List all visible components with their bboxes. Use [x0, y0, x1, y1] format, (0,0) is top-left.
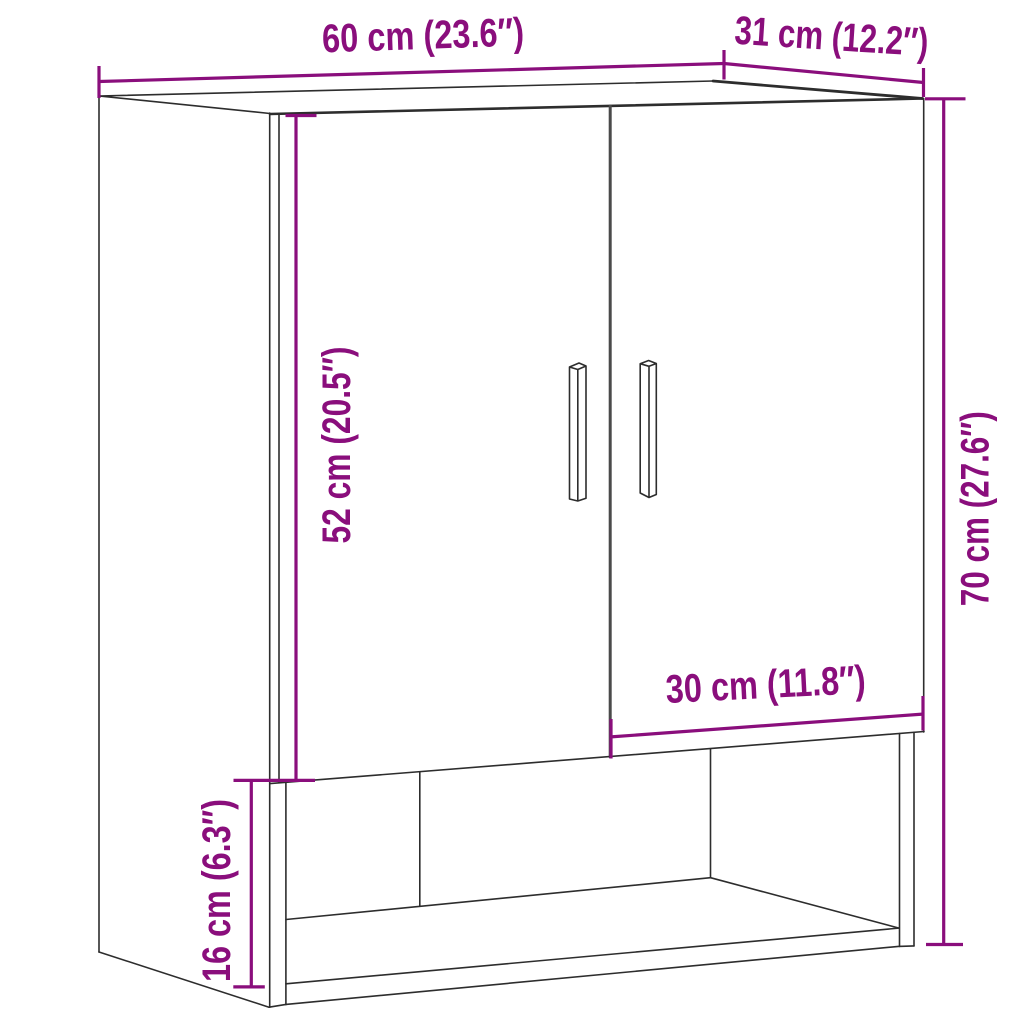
- svg-text:52 cm (20.5″): 52 cm (20.5″): [315, 347, 359, 544]
- svg-text:16 cm (6.3″): 16 cm (6.3″): [195, 799, 239, 982]
- svg-text:60 cm (23.6″): 60 cm (23.6″): [321, 10, 524, 61]
- svg-text:70 cm (27.6″): 70 cm (27.6″): [954, 411, 998, 606]
